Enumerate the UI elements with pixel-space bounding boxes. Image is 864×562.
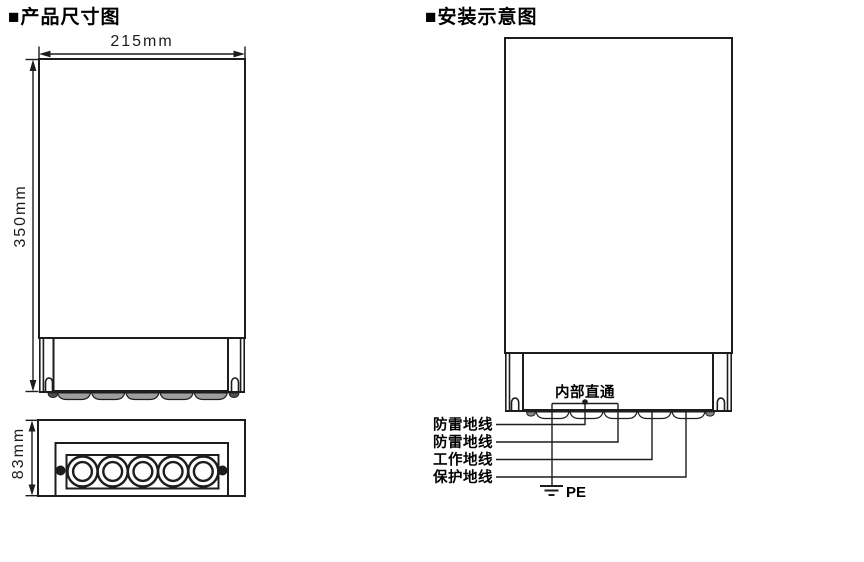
gland-scallop (672, 412, 705, 419)
gland-scallop (570, 412, 603, 419)
right-diagram-title: ■安装示意图 (425, 5, 537, 28)
technical-diagram-page: ■产品尺寸图 215mm 350mm (0, 0, 864, 562)
gland-scallop (58, 393, 91, 400)
mounting-hook-icon (46, 378, 53, 392)
width-dimension: 215mm (39, 33, 245, 58)
mounting-hook-icon (232, 378, 239, 392)
gland-scallop (604, 412, 637, 419)
arrowhead-down-icon (29, 485, 36, 496)
left-diagram-title: ■产品尺寸图 (8, 5, 120, 28)
gland-scallop (92, 393, 125, 400)
gland-endcap (706, 412, 715, 416)
mounting-hook-icon (512, 398, 519, 410)
gland-scallop (160, 393, 193, 400)
gland-endcap (48, 393, 58, 398)
installation-device (505, 38, 732, 419)
gland-inner-ring (194, 462, 213, 481)
gland-inner-ring (164, 462, 183, 481)
wire-label-4: 保护地线 (432, 468, 493, 486)
product-dimension-diagram: ■产品尺寸图 215mm 350mm (8, 5, 245, 496)
height-dimension: 350mm (12, 60, 39, 392)
cable-glands (68, 457, 219, 487)
wire-label-2: 防雷地线 (433, 433, 493, 451)
installation-diagram: ■安装示意图 内部直通 (425, 5, 732, 501)
gland-inner-ring (73, 462, 92, 481)
gland-scallop (194, 393, 227, 400)
internal-link-label: 内部直通 (555, 383, 615, 401)
wire-label-3: 工作地线 (433, 451, 493, 469)
front-view (39, 59, 245, 400)
diagram-canvas: ■产品尺寸图 215mm 350mm (0, 0, 864, 562)
pe-label: PE (566, 484, 586, 501)
arrowhead-up-icon (30, 60, 37, 72)
gland-endcap (229, 393, 239, 398)
earth-ground-icon (540, 486, 563, 495)
mounting-hook-icon (717, 398, 724, 410)
wire-protective-ground (496, 411, 686, 477)
gland-scallop (638, 412, 671, 419)
wire-label-1: 防雷地线 (433, 416, 493, 434)
grounding-wiring: 内部直通 防雷地线 防雷地线 工作地线 保护地线 (432, 383, 686, 501)
arrowhead-down-icon (30, 380, 37, 392)
height-dimension-label: 350mm (12, 184, 29, 247)
screw-dot (56, 466, 66, 476)
bottom-view (38, 420, 245, 496)
arrowhead-right-icon (234, 51, 246, 58)
terminal-compartment (523, 353, 713, 410)
arrowhead-up-icon (29, 421, 36, 432)
device-body-outline (505, 38, 732, 353)
gland-inner-ring (134, 462, 153, 481)
bottom-view-height-dimension: 83mm (10, 420, 38, 495)
gland-inner-ring (103, 462, 122, 481)
device-body-outline (39, 59, 245, 338)
bottom-height-label: 83mm (10, 427, 27, 479)
width-dimension-label: 215mm (110, 33, 173, 50)
arrowhead-left-icon (39, 51, 51, 58)
bottom-view-outer (38, 420, 245, 496)
gland-endcap (527, 412, 536, 416)
terminal-compartment (54, 338, 229, 391)
gland-scallop (126, 393, 159, 400)
